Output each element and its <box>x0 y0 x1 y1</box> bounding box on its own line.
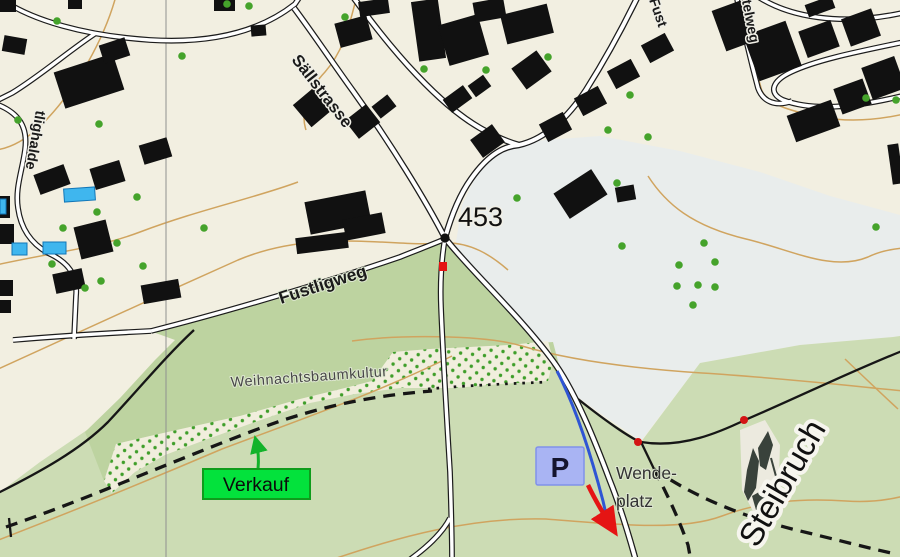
spot-height-label: 453 <box>458 202 503 232</box>
verkauf-label: Verkauf <box>223 474 290 496</box>
topographic-map: 453 Sällstrasse Fustligweg Fust ttelweg … <box>0 0 900 557</box>
parking-label: P <box>551 452 570 483</box>
wendeplatz-label-line2: platz <box>616 491 653 511</box>
wendeplatz-label-line1: Wende- <box>616 463 677 483</box>
red-route-mark <box>439 262 447 271</box>
map-canvas[interactable]: 453 Sällstrasse Fustligweg Fust ttelweg … <box>0 0 900 557</box>
red-path-dot-1 <box>634 438 642 446</box>
parking-marker[interactable]: P <box>536 447 584 485</box>
red-path-dot-2 <box>740 416 748 424</box>
spot-height-dot <box>440 233 449 242</box>
